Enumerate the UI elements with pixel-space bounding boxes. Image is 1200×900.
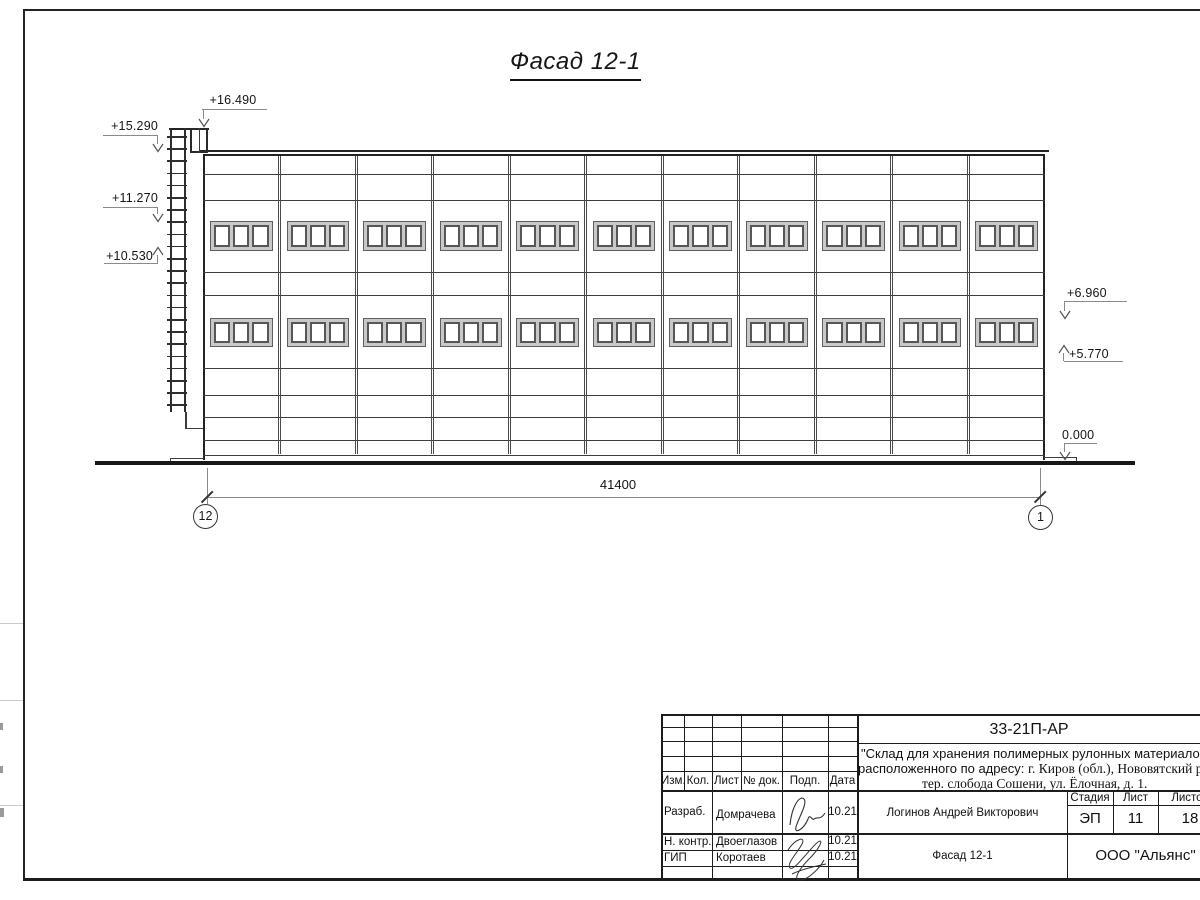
ladder-rung [167,380,187,382]
ladder-rung [167,282,187,284]
approver-name: Логинов Андрей Викторович [858,807,1067,819]
elevation-label: +10.530 [98,249,153,263]
elevation-label: +15.290 [100,119,158,133]
window-pane [903,225,919,247]
window-pane [329,322,345,343]
window-pane [252,225,268,247]
titleblock-line [712,714,713,880]
window [363,318,426,347]
margin-mark [0,805,23,806]
window-pane [386,322,402,343]
window-pane [520,225,536,247]
window-pane [616,322,632,343]
window [516,318,579,347]
axis-bubble-12: 12 [193,504,218,529]
panel-joint [737,156,740,454]
titleblock-line [858,743,1200,744]
window-pane [482,225,498,247]
row-role: Н. контр. [664,836,711,848]
col-data: Дата [828,775,857,787]
window [975,318,1038,347]
window-pane [405,225,421,247]
window-pane [865,225,881,247]
window-pane [769,322,785,343]
sheets-label: Листов [1158,792,1200,804]
ladder-rung [167,197,187,199]
ladder-rung [167,356,187,358]
window-pane [1018,225,1034,247]
margin-tick [0,808,4,817]
row-role: Разраб. [664,806,705,818]
window-pane [444,322,460,343]
panel-joint [278,156,281,454]
signature [784,791,828,835]
window-pane [846,225,862,247]
ladder-rung [167,160,187,162]
wall-base-line [203,455,1045,456]
row-name: Домрачева [716,809,776,821]
window [287,221,350,251]
drawing-title: Фасад 12-1 [510,48,641,81]
window [822,221,885,251]
dimension-value: 41400 [588,477,648,492]
titleblock-border [661,714,663,880]
frame-left [23,9,25,880]
panel-seam-line [203,395,1045,396]
ladder-rung [167,307,187,309]
frame-bottom [23,878,1200,881]
elevation-shelf [104,263,158,264]
window [975,221,1038,251]
drawing-sheet: Фасад 12-1 +16.490 +15.290 +11.270 +10.5… [0,0,1200,900]
ladder-rung [167,246,187,248]
ladder-rung [167,221,187,223]
project-desc-line2: расположенного по адресу: г. Киров (обл.… [858,761,1200,777]
elevation-label: +5.770 [1069,347,1109,361]
elevation-shelf [1064,361,1123,362]
ground-line [95,461,1135,465]
window-pane [463,322,479,343]
panel-joint [584,156,587,454]
elevation-arrow-down-icon [152,143,164,152]
frame-top [23,9,1200,11]
window-pane [616,225,632,247]
ladder-rung [167,331,187,333]
ladder-rung [167,270,187,272]
ladder-exit-box-mid [199,128,200,153]
window [440,221,503,251]
row-date: 10.21 [828,851,857,863]
stage-value: ЭП [1067,810,1113,827]
ladder-bottom-bracket-v [185,412,187,429]
window-pane [903,322,919,343]
window-pane [769,225,785,247]
project-desc-line1: "Склад для хранения полимерных рулонных … [861,746,1200,761]
window-pane [788,225,804,247]
panel-seam-line [203,200,1045,201]
elevation-shelf [1064,443,1097,444]
panel-joint [967,156,970,454]
ladder-rung [167,185,187,187]
window [287,318,350,347]
window [210,221,273,251]
ladder-rung [167,173,187,175]
elevation-shelf [103,207,158,208]
elevation-arrow-down-icon [1059,451,1071,460]
window-pane [597,322,613,343]
ladder-rung [167,258,187,260]
sheet-label: Лист [1113,792,1158,804]
panel-joint [355,156,358,454]
elevation-label: +6.960 [1067,286,1107,300]
panel-joint [431,156,434,454]
ladder-rung [167,148,187,150]
cornice-line [199,150,1049,152]
window-pane [329,225,345,247]
window-pane [444,225,460,247]
row-name: Двоеглазов [716,836,777,848]
window [516,221,579,251]
panel-joint [890,156,893,454]
margin-mark [0,623,23,624]
window-pane [865,322,881,343]
window-pane [214,322,230,343]
company-name: ООО "Альянс" [1067,847,1200,864]
window [440,318,503,347]
titleblock-line [661,833,1200,835]
window-pane [367,225,383,247]
elevation-label: +16.490 [201,93,265,107]
window-pane [712,322,728,343]
window [363,221,426,251]
window-pane [291,225,307,247]
ladder-rung [167,234,187,236]
window-pane [597,225,613,247]
doc-number: 33-21П-АР [858,721,1200,739]
window-pane [635,225,651,247]
signature [780,834,830,884]
margin-tick [0,723,3,730]
elevation-arrow-down-icon [1059,310,1071,319]
window-pane [310,225,326,247]
window [746,318,809,347]
extension-line-left [207,468,208,504]
panel-joint [814,156,817,454]
window-pane [673,322,689,343]
window-pane [922,322,938,343]
ladder-rung [167,136,187,138]
elevation-label: 0.000 [1062,428,1094,442]
window-pane [233,225,249,247]
ladder-rung [167,295,187,297]
window [669,221,732,251]
window-pane [788,322,804,343]
margin-mark [0,700,23,701]
plinth-left [170,458,204,459]
col-ndok: № док. [741,775,782,787]
window-pane [826,225,842,247]
window-pane [520,322,536,343]
titleblock-line [1067,805,1200,806]
window-pane [482,322,498,343]
window [899,318,962,347]
elevation-stem [1063,353,1064,361]
window-pane [750,322,766,343]
sheet-number: 11 [1113,810,1158,827]
window [669,318,732,347]
window [210,318,273,347]
window-pane [941,322,957,343]
elevation-shelf [103,135,158,136]
window [899,221,962,251]
elevation-shelf [1064,301,1127,302]
window-pane [386,225,402,247]
window-pane [750,225,766,247]
row-role: ГИП [664,852,687,864]
ladder-rung [167,392,187,394]
panel-seam-line [203,174,1045,175]
col-izm: Изм. [661,775,684,787]
ladder-rung [167,368,187,370]
window-pane [979,225,995,247]
project-desc-line2-sans: расположенного по адресу: [858,761,1028,776]
extension-line-right [1040,468,1041,505]
window [746,221,809,251]
dimension-line [207,497,1040,498]
elevation-shelf [202,109,267,110]
col-kol: Кол. [684,775,712,787]
panel-joint [661,156,664,454]
window-pane [941,225,957,247]
ladder-rung [167,404,187,406]
window-pane [979,322,995,343]
margin-tick [0,766,3,773]
ladder-rung [167,319,187,321]
window-pane [367,322,383,343]
window [593,318,656,347]
window [822,318,885,347]
panel-seam-line [203,368,1045,369]
window-pane [826,322,842,343]
stage-label: Стадия [1067,792,1113,804]
window [593,221,656,251]
drawing-name: Фасад 12-1 [858,850,1067,862]
wall-top [203,154,1045,156]
row-name: Коротаев [716,852,766,864]
window-pane [1018,322,1034,343]
row-date: 10.21 [828,806,857,818]
window-pane [559,225,575,247]
panel-joint [508,156,511,454]
window-pane [214,225,230,247]
window-pane [635,322,651,343]
project-desc-line2-serif: г. Киров (обл.), Нововятский р-н, [1028,761,1200,776]
window-pane [252,322,268,343]
elevation-arrow-down-icon [152,213,164,222]
window-pane [922,225,938,247]
col-list: Лист [712,775,741,787]
panel-seam-line [203,295,1045,296]
project-desc-line3: тер. слобода Сошени, ул. Ёлочная, д. 1. [922,776,1147,792]
ladder-bottom-bracket-h [185,428,203,429]
window-pane [291,322,307,343]
window-pane [405,322,421,343]
window-pane [692,322,708,343]
window-pane [463,225,479,247]
window-pane [233,322,249,343]
ladder-rung [167,209,187,211]
window-pane [846,322,862,343]
panel-seam-line [203,440,1045,441]
window-pane [692,225,708,247]
window-pane [539,322,555,343]
window-pane [999,322,1015,343]
row-date: 10.21 [828,835,857,847]
ladder-rung [167,343,187,345]
elevation-arrow-down-icon [198,118,210,127]
sheets-total: 18 [1158,810,1200,827]
window-pane [673,225,689,247]
window-pane [539,225,555,247]
col-podp: Подп. [782,775,828,787]
panel-seam-line [203,272,1045,273]
window-pane [999,225,1015,247]
window-pane [712,225,728,247]
elevation-label: +11.270 [100,191,158,205]
window-pane [310,322,326,343]
window-pane [559,322,575,343]
axis-bubble-1: 1 [1028,505,1053,530]
panel-seam-line [203,417,1045,418]
